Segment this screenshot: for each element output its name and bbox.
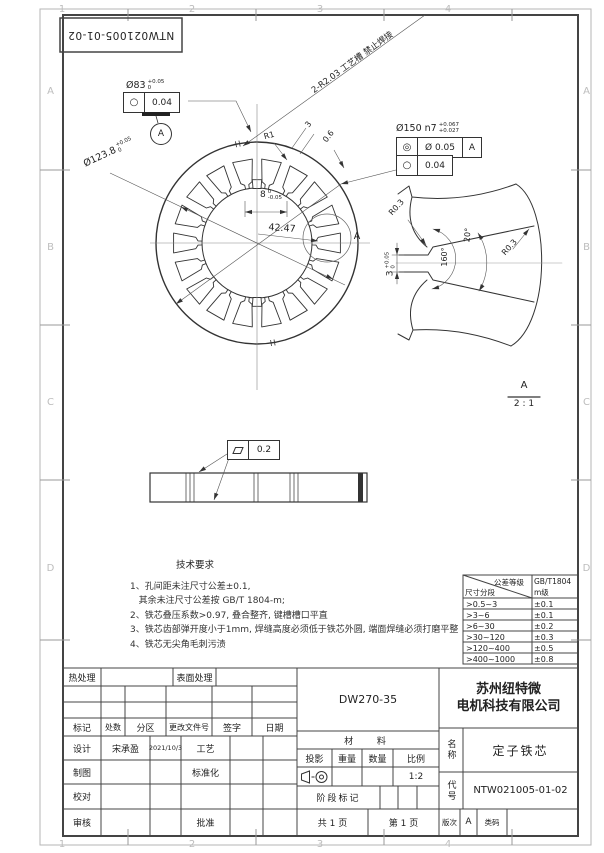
stator-front-view — [110, 15, 425, 390]
tech-req-line-3: 2、铁芯叠压系数>0.97, 叠合整齐, 键槽槽口平直 — [130, 608, 328, 621]
detail-view-label: A — [510, 379, 538, 392]
tol-row-seg: >30~120 — [466, 632, 505, 642]
tb-ratio-label: 比例 — [393, 749, 439, 767]
tb-name-label: 名称 — [439, 728, 463, 772]
tb-material-value: DW270-35 — [297, 668, 439, 731]
tol-row-val: ±0.1 — [534, 610, 553, 620]
tb-draft-label: 制图 — [63, 760, 101, 784]
zone-label-top-1: 1 — [56, 3, 68, 15]
tb-code-label: 代号 — [439, 772, 463, 809]
tol-row-val: ±0.2 — [534, 621, 553, 631]
tb-craft-label: 工艺 — [181, 736, 230, 760]
tb-rev-value: A — [460, 809, 477, 835]
fcf-flatness: 0.2 — [227, 440, 280, 460]
zone-label-right-b: B — [580, 241, 593, 253]
tol-hdr-standard: GB/T1804 — [534, 576, 571, 586]
tb-audit-label: 审核 — [63, 809, 101, 835]
zone-label-right-d: D — [580, 562, 593, 574]
zone-label-bottom-4: 4 — [442, 838, 454, 850]
detail-view-scale: 2 : 1 — [510, 398, 538, 409]
detail-view-a — [392, 184, 562, 397]
tol-row-val: ±0.5 — [534, 643, 553, 653]
tech-req-line-2: 其余未注尺寸公差按 GB/T 1804-m; — [130, 593, 285, 606]
tol-row-val: ±0.8 — [534, 654, 553, 664]
tech-req-line-4: 3、铁芯齿部弹开度小于1mm, 焊缝高度必须低于铁芯外圆, 端面焊缝必须打磨平整 — [130, 622, 458, 635]
tb-pages-total: 共 1 页 — [297, 809, 368, 835]
tb-rev-label: 版次 — [439, 809, 460, 835]
tb-part-code: NTW021005-01-02 — [463, 772, 578, 809]
detail-angle-20: 20° — [461, 226, 473, 245]
tol-hdr-grade: 公差等级 — [486, 577, 532, 587]
tb-quantity-label: 数量 — [362, 749, 393, 767]
detail-dim-3-tolerance: +0.050 — [384, 252, 396, 269]
weld-seam-lines — [186, 473, 298, 502]
zone-label-left-b: B — [44, 241, 57, 253]
fcf-od-datum-ref: A — [462, 138, 481, 157]
flatness-icon — [228, 441, 248, 459]
dim-od-value: Ø150 n7 — [396, 123, 437, 134]
fcf-bore-value: 0.04 — [144, 93, 179, 112]
tb-designer-name: 宋承盈 — [101, 736, 150, 760]
zone-label-left-d: D — [44, 562, 57, 574]
tb-stage-label: 阶段标记 — [297, 786, 380, 809]
tb-company-line1: 苏州纽特微 — [476, 681, 541, 698]
zone-label-right-a: A — [580, 85, 593, 97]
tb-rev-col-mark: 标记 — [63, 718, 101, 736]
tb-rev-col-date: 日期 — [252, 718, 297, 736]
tech-req-title: 技术要求 — [150, 557, 240, 570]
zone-label-left-a: A — [44, 85, 57, 97]
tb-surface-label: 表面处理 — [173, 668, 216, 686]
dim-bore: Ø83 +0.050 — [126, 79, 164, 91]
tol-hdr-level: m级 — [534, 587, 549, 597]
detail-angle-160: 160° — [439, 245, 449, 269]
tb-proof-label: 校对 — [63, 784, 101, 809]
tb-company-name: 苏州纽特微电机科技有限公司 — [439, 668, 578, 728]
tol-row-val: ±0.1 — [534, 599, 553, 609]
zone-label-top-3: 3 — [314, 3, 326, 15]
tb-ratio-value: 1:2 — [393, 767, 439, 786]
dim-8-value: 8 — [260, 190, 266, 200]
zone-label-top-2: 2 — [186, 3, 198, 15]
zone-label-bottom-1: 1 — [56, 838, 68, 850]
tb-design-label: 设计 — [63, 736, 101, 760]
tech-req-line-1: 1、孔间距未注尺寸公差±0.1, — [130, 579, 250, 592]
zone-label-left-c: C — [44, 396, 57, 408]
tb-part-name: 定子铁芯 — [463, 728, 578, 772]
tb-rev-col-docno: 更改文件号 — [166, 718, 212, 736]
dim-od-tolerance: +0.067+0.027 — [439, 122, 459, 134]
circularity-icon-2: ○ — [397, 156, 417, 175]
dim-bore-tolerance: +0.050 — [148, 79, 165, 91]
detail-dim-3: 3 +0.050 — [384, 252, 396, 277]
dim-bore-value: Ø83 — [126, 80, 146, 91]
first-angle-projection-icon — [297, 767, 332, 786]
stamp-drawing-number: NTW021005-01-02 — [60, 18, 182, 52]
zone-label-bottom-3: 3 — [314, 838, 326, 850]
tb-approve-label: 批准 — [181, 809, 230, 835]
tb-standard-label: 标准化 — [181, 760, 230, 784]
fcf-od-circularity: ○ 0.04 — [396, 155, 453, 176]
tol-row-seg: >3~6 — [466, 610, 490, 620]
detail-a-mark: A — [350, 230, 364, 243]
tol-row-seg: >6~30 — [466, 621, 495, 631]
tech-req-line-5: 4、铁芯无尖角毛刺污渍 — [130, 637, 226, 650]
tb-heat-label: 热处理 — [63, 668, 101, 686]
dim-od: Ø150 n7 +0.067+0.027 — [396, 122, 459, 134]
tb-page-number: 第 1 页 — [368, 809, 439, 835]
tb-class-label: 类码 — [477, 809, 507, 835]
tol-row-val: ±0.3 — [534, 632, 553, 642]
fcf-od-circularity-value: 0.04 — [417, 156, 452, 175]
zone-label-right-c: C — [580, 396, 593, 408]
tb-material-label: 材 料 — [297, 731, 439, 749]
fcf-flatness-value: 0.2 — [248, 441, 279, 459]
tb-rev-col-zone: 分区 — [125, 718, 166, 736]
tb-design-date: 2021/10/3 — [150, 736, 181, 760]
dim-8: 8 0-0.05 — [260, 189, 282, 201]
tol-row-seg: >400~1000 — [466, 654, 515, 664]
tol-row-seg: >0.5~3 — [466, 599, 497, 609]
tb-rev-col-count: 处数 — [101, 718, 125, 736]
datum-triangle-bar — [142, 112, 170, 116]
tb-company-line2: 电机科技有限公司 — [456, 698, 560, 715]
engineering-drawing-sheet: 1 2 3 4 1 2 3 4 A B C D A B C D NTW02100… — [0, 0, 604, 853]
zone-label-top-4: 4 — [442, 3, 454, 15]
datum-a-circle-label: A — [150, 123, 172, 145]
tol-row-seg: >120~400 — [466, 643, 510, 653]
detail-dim-3-value: 3 — [385, 271, 395, 277]
stack-side-view — [150, 454, 367, 502]
fcf-bore-circularity: ○ 0.04 — [123, 92, 180, 113]
tb-weight-label: 重量 — [332, 749, 362, 767]
circularity-icon: ○ — [124, 93, 144, 112]
tb-rev-col-sign: 签字 — [212, 718, 252, 736]
zone-label-bottom-2: 2 — [186, 838, 198, 850]
dim-8-tolerance: 0-0.05 — [268, 189, 282, 201]
tol-hdr-segment: 尺寸分段 — [465, 587, 495, 597]
tb-projection-label: 投影 — [297, 749, 332, 767]
